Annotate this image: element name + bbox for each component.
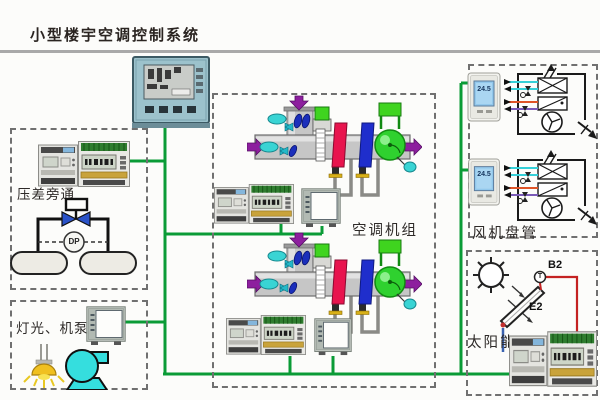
ddc-controller-ahu1-icon <box>214 183 294 225</box>
io-panel-ahu1-icon <box>300 188 342 228</box>
fan-coil-label: 风机盘管 <box>472 222 538 243</box>
dp-sensor-label: DP <box>64 237 84 246</box>
solar-t-sensor-mark: T <box>535 273 545 280</box>
bypass-valve-piping-icon <box>10 128 148 290</box>
hmi-touch-panel-icon <box>132 56 210 128</box>
diagram-canvas: 小型楼宇空调控制系统 <box>0 0 600 400</box>
ddc-controller-ahu2-icon <box>226 314 306 356</box>
thermostat-1-icon <box>467 72 501 122</box>
solar-b2-label: B2 <box>548 259 562 271</box>
thermostat-1-reading: 24.5 <box>473 86 495 93</box>
solar-e2-label: E2 <box>529 301 542 313</box>
io-panel-ahu2-icon <box>314 318 352 356</box>
thermostat-2-icon <box>467 158 501 206</box>
thermostat-2-reading: 24.5 <box>473 171 495 178</box>
fan-coil-unit-2-icon <box>503 150 598 230</box>
fan-coil-unit-1-icon <box>503 64 598 144</box>
lamp-and-pump-icon <box>10 300 148 390</box>
ddc-controller-solar-icon <box>509 330 597 388</box>
